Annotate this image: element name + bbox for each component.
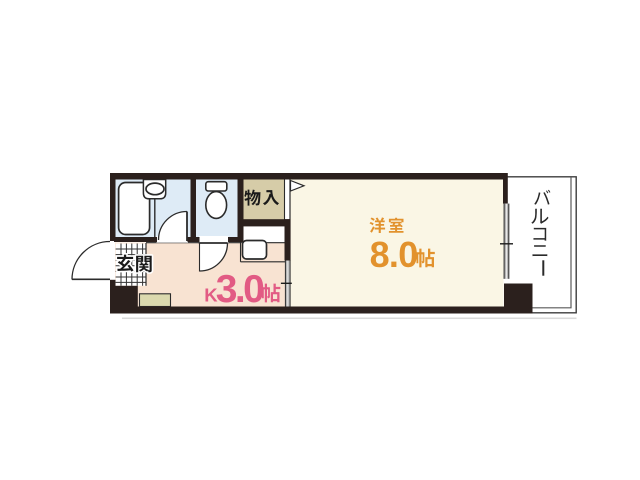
svg-text:8.0: 8.0 xyxy=(370,234,418,275)
svg-text:3.0: 3.0 xyxy=(216,268,264,311)
